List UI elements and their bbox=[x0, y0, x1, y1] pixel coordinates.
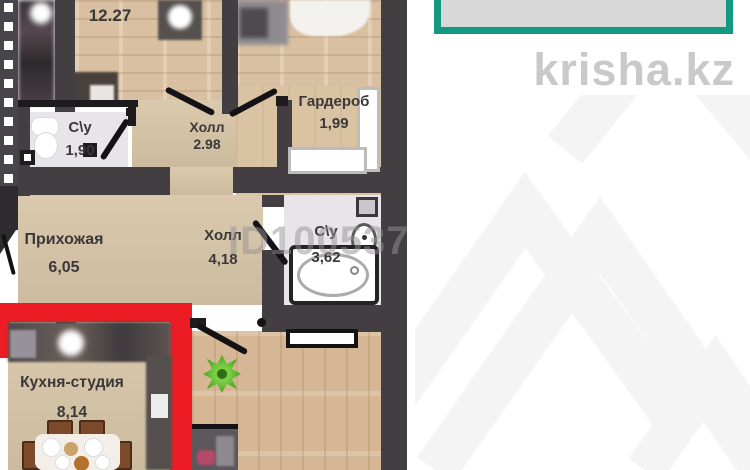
label-bedroom-area: 12.27 bbox=[89, 4, 132, 28]
hallway-bottom-wall-left bbox=[18, 167, 170, 195]
wardrobe-name: Гардероб bbox=[299, 91, 370, 113]
toilet-bowl bbox=[34, 132, 58, 159]
label-wardrobe: Гардероб 1,99 bbox=[299, 91, 370, 135]
mid-top-wall bbox=[222, 0, 238, 114]
wardrobe-shelf-bottom bbox=[288, 147, 367, 174]
label-entry: Прихожая 6,05 bbox=[25, 226, 104, 282]
highlight-red-top bbox=[0, 303, 192, 322]
teal-banner bbox=[434, 0, 733, 34]
bedroom-lamp-glow bbox=[168, 5, 192, 29]
kitchen-window-gray bbox=[10, 330, 36, 358]
exterior-highlight bbox=[30, 2, 52, 24]
plate-6 bbox=[95, 455, 110, 470]
hall-small-area: 2.98 bbox=[189, 136, 224, 153]
plate-5 bbox=[74, 456, 89, 470]
kitchen-sink-glow bbox=[58, 330, 84, 356]
door-hinge-b bbox=[276, 96, 288, 106]
fridge-pink-item bbox=[197, 450, 215, 465]
kitchen-name: Кухня-студия bbox=[20, 368, 124, 398]
label-kitchen: Кухня-студия 8,14 bbox=[20, 368, 124, 428]
hall-small-name: Холл bbox=[189, 119, 224, 136]
plate-4 bbox=[55, 455, 70, 470]
bedroom-area-value: 12.27 bbox=[89, 6, 132, 25]
kitchen-area: 8,14 bbox=[20, 398, 124, 428]
door-hinge-a bbox=[126, 108, 136, 116]
plate-1 bbox=[42, 438, 61, 457]
label-hall-small: Холл 2.98 bbox=[189, 119, 224, 153]
window-hinge-dot bbox=[257, 318, 266, 327]
bath-small-corner-box bbox=[20, 150, 35, 165]
outer-left-wall-top bbox=[55, 0, 75, 112]
plant-center bbox=[217, 369, 227, 379]
label-bath-small: С\у 1,90 bbox=[65, 116, 94, 162]
staircase-shaft bbox=[0, 0, 18, 188]
topright-furniture-dark bbox=[240, 8, 268, 38]
entry-left-wall bbox=[0, 186, 18, 230]
kitchen-cabinet-panel bbox=[151, 394, 168, 418]
stair-treads bbox=[4, 3, 13, 185]
krisha-logo: krisha.kz bbox=[470, 44, 735, 96]
bathtub-drain bbox=[350, 266, 359, 275]
wardrobe-area: 1,99 bbox=[299, 113, 370, 135]
living-window bbox=[286, 329, 358, 348]
bath-small-name: С\у bbox=[65, 116, 94, 139]
entry-name: Прихожая bbox=[25, 226, 104, 254]
plate-2 bbox=[64, 442, 78, 456]
bath-main-washer bbox=[356, 197, 378, 217]
bath-small-top-wall bbox=[18, 100, 138, 107]
fridge-inner-panel bbox=[216, 436, 234, 466]
chevron-watermark-pattern bbox=[415, 95, 750, 470]
entry-area: 6,05 bbox=[25, 254, 104, 282]
bath-small-area: 1,90 bbox=[65, 139, 94, 162]
hall-connector-floor bbox=[170, 167, 233, 195]
floorplan-screenshot: 12.27 С\у 1,90 Холл 2.98 Гардероб 1,99 П… bbox=[0, 0, 750, 470]
highlight-red-right bbox=[170, 303, 192, 470]
bath-main-left-wall-top bbox=[262, 195, 284, 207]
